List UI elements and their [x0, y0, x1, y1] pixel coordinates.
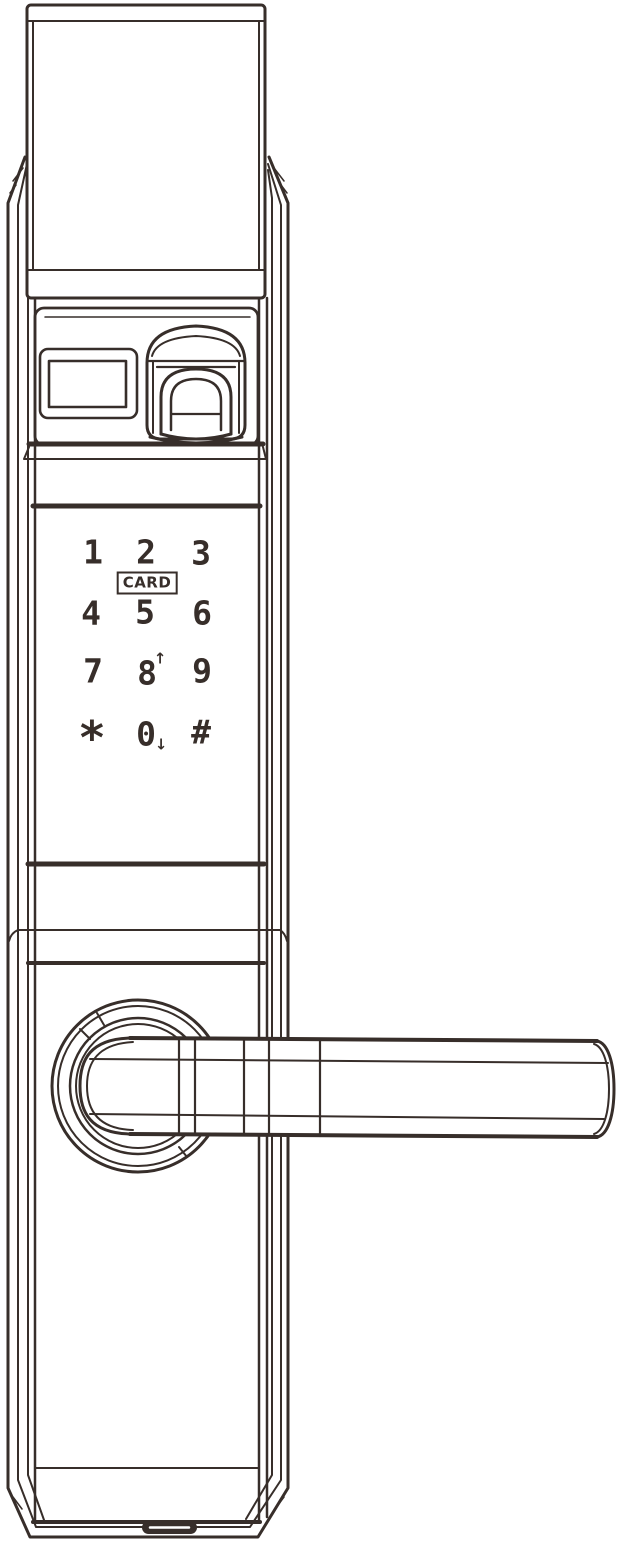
keypad-key-6: 6: [192, 597, 212, 630]
door-lock-illustration: 1 2 3 CARD 4 5 6 7 8 ↑ 9 * 0 ↓ #: [0, 0, 617, 1541]
keypad: 1 2 3 CARD 4 5 6 7 8 ↑ 9 * 0 ↓ #: [0, 0, 617, 1541]
keypad-key-9: 9: [192, 655, 212, 688]
keypad-key-1: 1: [83, 536, 103, 569]
keypad-key-star: *: [78, 715, 106, 761]
card-reader-label: CARD: [117, 572, 178, 595]
scroll-up-icon: ↑: [154, 652, 167, 667]
keypad-key-hash: #: [191, 716, 211, 749]
keypad-key-7: 7: [83, 655, 103, 688]
keypad-key-4: 4: [81, 597, 101, 630]
keypad-key-3: 3: [191, 537, 211, 570]
keypad-key-5: 5: [135, 596, 155, 629]
scroll-down-icon: ↓: [155, 738, 168, 753]
keypad-key-2: 2: [136, 536, 156, 569]
keypad-key-0: 0: [136, 718, 156, 751]
